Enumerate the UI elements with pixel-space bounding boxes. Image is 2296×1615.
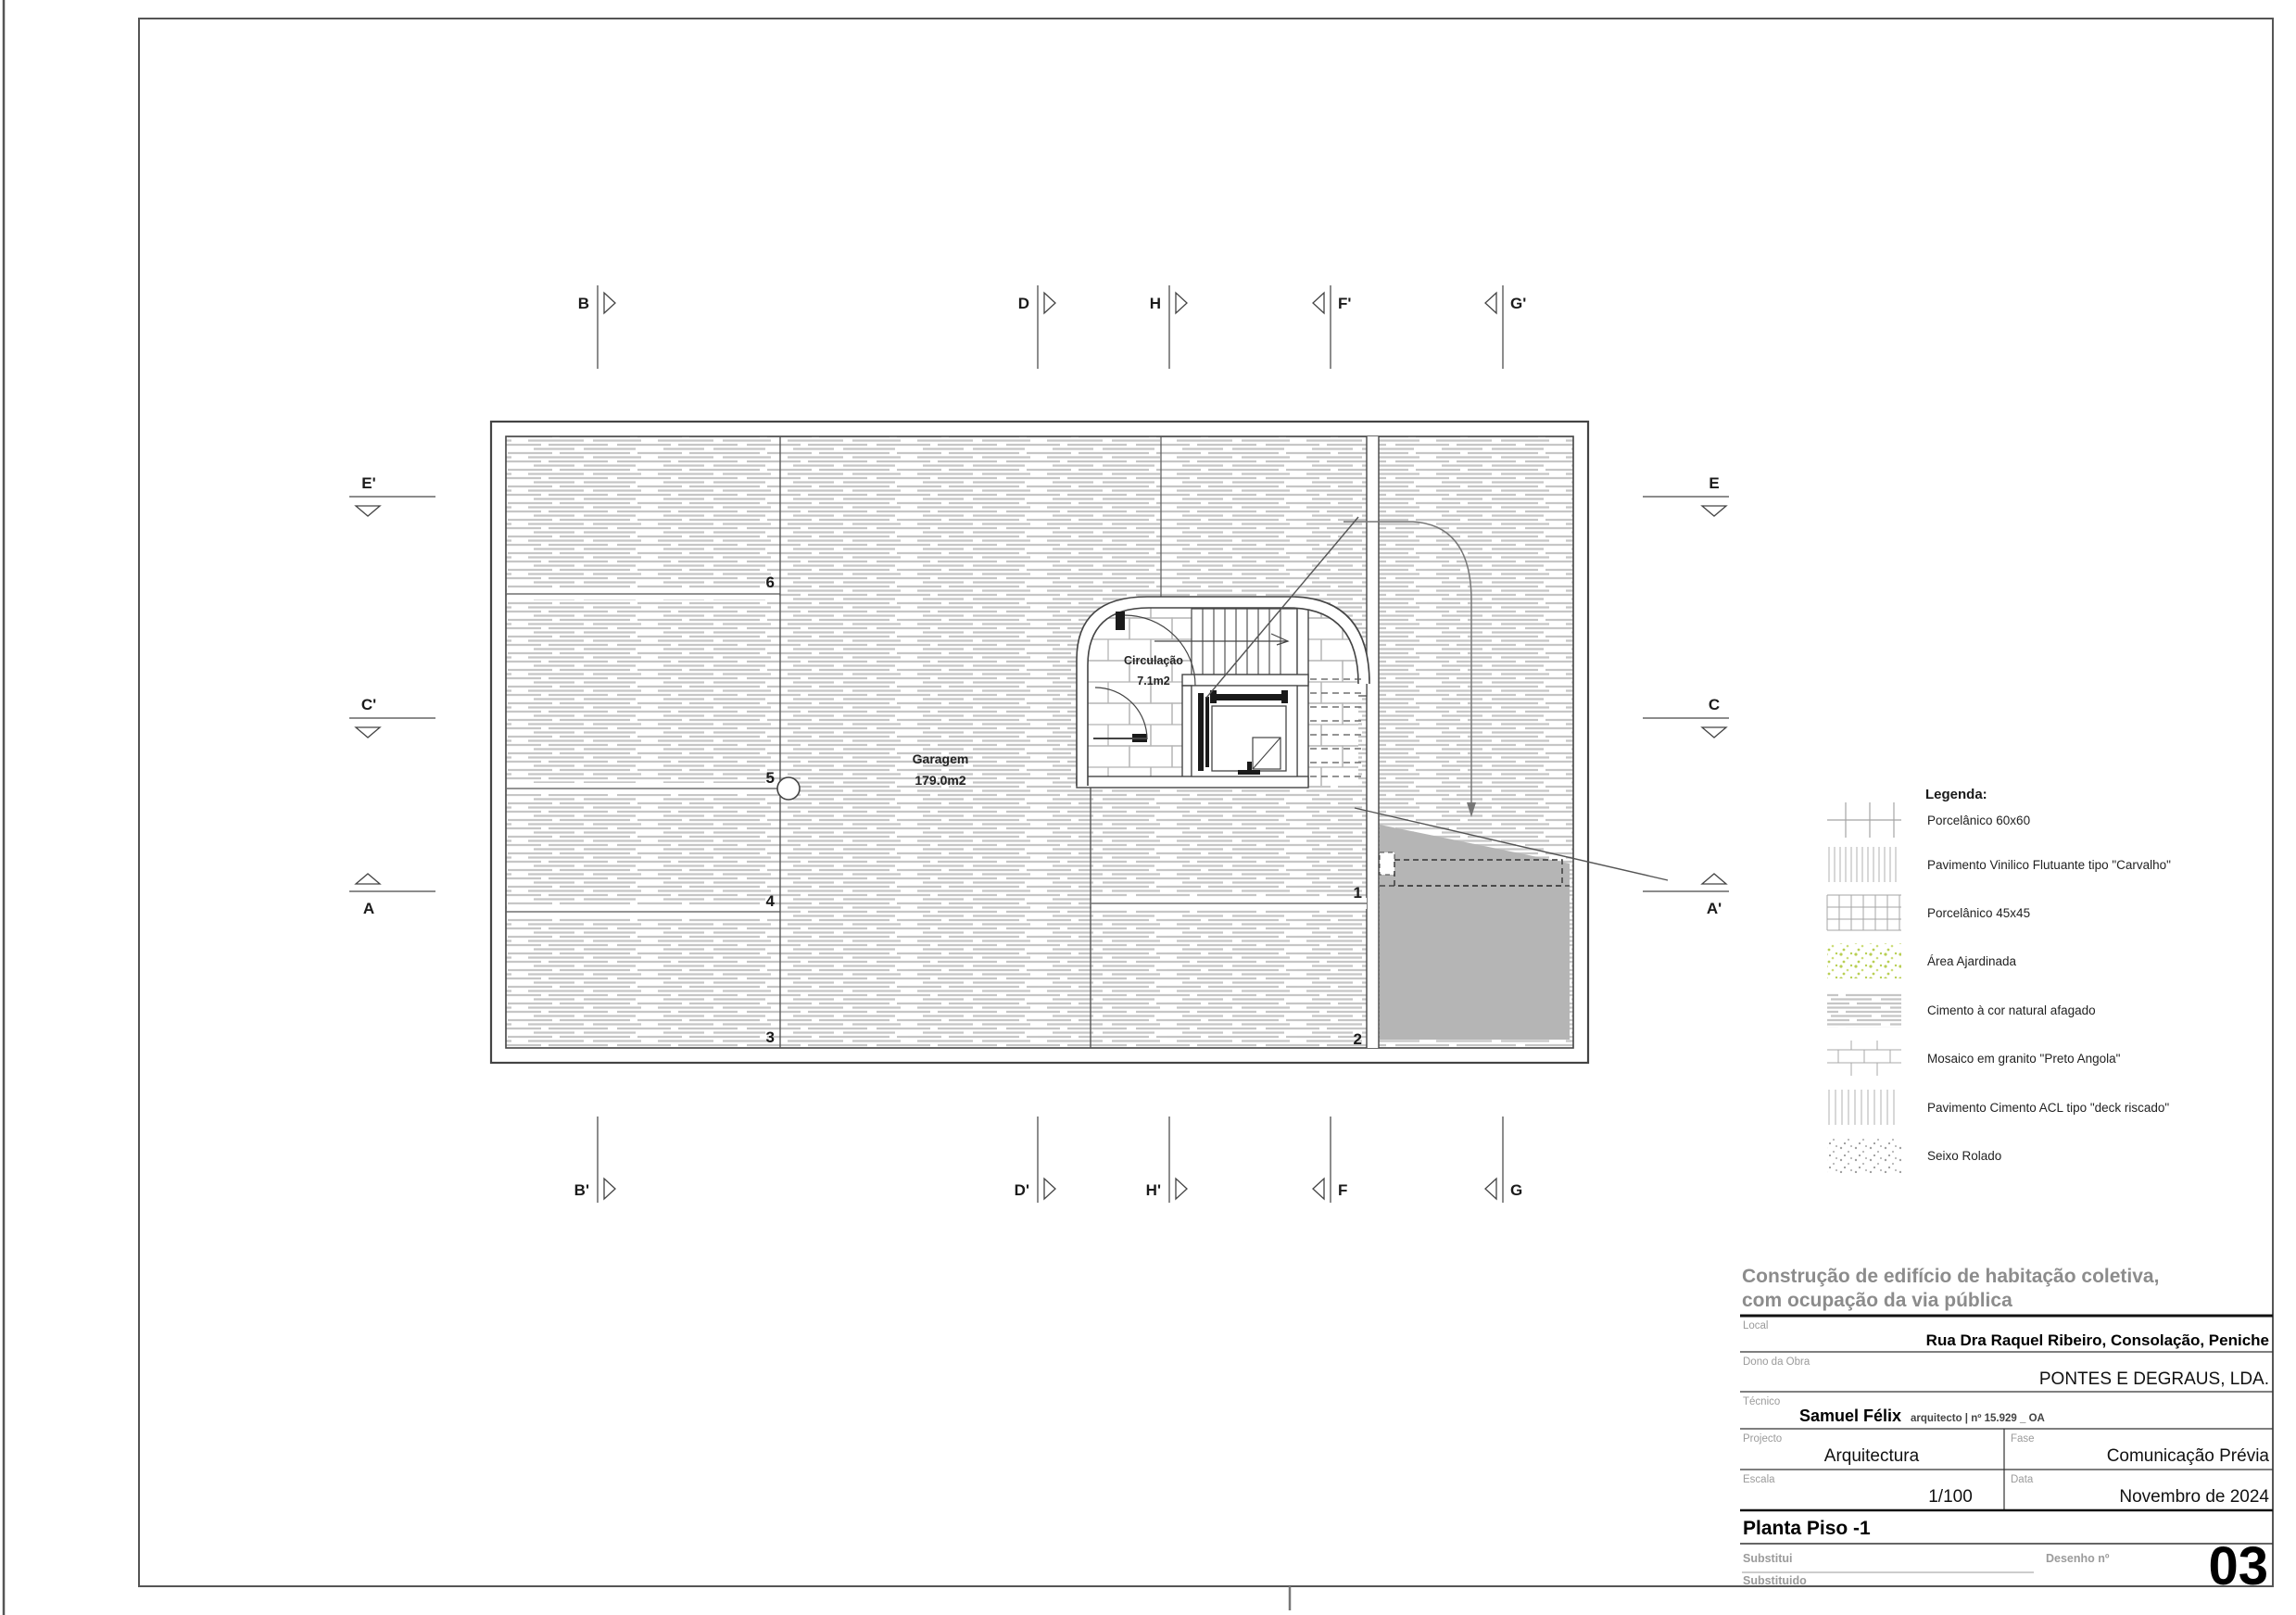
legend-item-label: Pavimento Vinilico Flutuante tipo "Carva… <box>1927 858 2171 872</box>
stall-number-6: 6 <box>766 574 775 591</box>
structural-column <box>777 777 800 800</box>
section-label: E' <box>361 474 375 492</box>
data-label: Data <box>2011 1474 2034 1485</box>
section-arrow-icon <box>356 874 380 884</box>
section-label: B' <box>574 1181 589 1199</box>
floor-plan: 6 5 4 3 1 2 Garagem 179.0m2 Circulação 7… <box>491 422 1668 1063</box>
garagem-area: 179.0m2 <box>915 773 965 788</box>
section-marker-Cp: C' <box>349 696 435 738</box>
dono-da-obra-label: Dono da Obra <box>1743 1356 1810 1368</box>
section-label: D <box>1018 295 1029 312</box>
section-marker-Ep: E' <box>349 474 435 516</box>
circulacao-area: 7.1m2 <box>1137 675 1169 688</box>
stall-separators-right <box>1091 898 1367 909</box>
escala-value: 1/100 <box>1928 1487 1973 1507</box>
section-label: H <box>1150 295 1161 312</box>
section-marker-Fp: F' <box>1313 285 1351 369</box>
section-label: B <box>578 295 589 312</box>
projecto-value: Arquitectura <box>1824 1446 1920 1466</box>
desenho-number: 03 <box>2208 1536 2268 1596</box>
legend-title: Legenda: <box>1925 787 1987 802</box>
data-value: Novembro de 2024 <box>2119 1487 2269 1507</box>
elevator <box>1192 686 1297 776</box>
section-marker-G: G <box>1485 1117 1522 1203</box>
section-label: G <box>1510 1181 1522 1199</box>
section-arrow-icon <box>604 1179 615 1199</box>
legend-swatch-deck-icon <box>1829 1090 1894 1125</box>
section-label: A <box>363 900 374 917</box>
fase-value: Comunicação Prévia <box>2107 1446 2270 1466</box>
section-arrow-icon <box>1044 1179 1055 1199</box>
stall-number-4: 4 <box>766 892 776 910</box>
section-marker-Bp: B' <box>574 1117 615 1203</box>
stall-number-2: 2 <box>1354 1030 1362 1048</box>
stair-core <box>1077 597 1369 788</box>
section-arrow-icon <box>1702 874 1726 884</box>
section-label: D' <box>1015 1181 1029 1199</box>
substitui-label: Substitui <box>1743 1552 1792 1565</box>
stall-number-5: 5 <box>766 769 775 787</box>
section-marker-Dp: D' <box>1015 1117 1055 1203</box>
garagem-label: Garagem <box>913 751 969 766</box>
section-marker-D: D <box>1018 285 1055 369</box>
tecnico-name: Samuel Félix <box>1799 1407 1901 1425</box>
section-arrow-icon <box>604 293 615 313</box>
section-label: C' <box>361 696 376 713</box>
legend-item-label: Porcelânico 60x60 <box>1927 814 2030 827</box>
local-value: Rua Dra Raquel Ribeiro, Consolação, Peni… <box>1926 1331 2269 1349</box>
project-title-line2: com ocupação da via pública <box>1742 1290 2012 1311</box>
plan-canvas: 6 5 4 3 1 2 Garagem 179.0m2 Circulação 7… <box>0 0 2296 1615</box>
section-marker-Ap: A' <box>1643 874 1729 917</box>
stall-number-3: 3 <box>766 1028 775 1046</box>
section-marker-H: H <box>1150 285 1187 369</box>
section-arrow-icon <box>1485 1179 1496 1199</box>
section-arrow-icon <box>356 506 380 516</box>
title-block: Construção de edifício de habitação cole… <box>1740 1266 2273 1596</box>
legend-swatch-porcelanico-60-icon <box>1827 802 1901 838</box>
door-jamb-top <box>1116 612 1125 630</box>
local-label: Local <box>1743 1320 1769 1331</box>
ramp-notch <box>1380 852 1394 875</box>
legend-swatch-cimento-icon <box>1827 992 1901 1028</box>
legend-swatch-ajardinada-icon <box>1827 943 1901 978</box>
section-marker-F: F <box>1313 1117 1347 1203</box>
legend-item-label: Seixo Rolado <box>1927 1149 2001 1163</box>
section-arrow-icon <box>1176 1179 1187 1199</box>
fase-label: Fase <box>2011 1433 2035 1445</box>
section-label: C <box>1709 696 1720 713</box>
section-label: E <box>1709 474 1719 492</box>
legend-item-label: Mosaico em granito "Preto Angola" <box>1927 1052 2121 1066</box>
section-arrow-icon <box>1313 1179 1324 1199</box>
drawing-title: Planta Piso -1 <box>1743 1518 1871 1539</box>
section-arrow-icon <box>1313 293 1324 313</box>
legend-swatch-porcelanico-45-icon <box>1827 895 1901 930</box>
escala-label: Escala <box>1743 1474 1775 1485</box>
section-arrow-icon <box>356 727 380 738</box>
dono-da-obra-value: PONTES E DEGRAUS, LDA. <box>2039 1369 2269 1389</box>
section-arrow-icon <box>1702 506 1726 516</box>
legend-swatch-seixo-icon <box>1827 1138 1901 1173</box>
desenho-label: Desenho nº <box>2046 1552 2110 1565</box>
legend-item-label: Pavimento Cimento ACL tipo "deck riscado… <box>1927 1101 2169 1115</box>
section-marker-B: B <box>578 285 615 369</box>
substituido-label: Substituido <box>1743 1574 1807 1587</box>
stall-number-1: 1 <box>1354 884 1362 902</box>
section-arrow-icon <box>1176 293 1187 313</box>
tecnico-label: Técnico <box>1743 1396 1780 1407</box>
section-marker-Gp: G' <box>1485 285 1526 369</box>
legend-swatch-granito-icon <box>1827 1041 1901 1076</box>
section-label: G' <box>1510 295 1526 312</box>
circulacao-label: Circulação <box>1124 654 1183 667</box>
section-arrow-icon <box>1485 293 1496 313</box>
section-arrow-icon <box>1044 293 1055 313</box>
section-label: H' <box>1146 1181 1161 1199</box>
section-marker-A: A <box>349 874 435 917</box>
section-marker-Hp: H' <box>1146 1117 1187 1203</box>
section-marker-E: E <box>1643 474 1729 516</box>
tecnico-credentials: arquitecto | nº 15.929 _ OA <box>1911 1413 2045 1424</box>
legend-item-label: Cimento à cor natural afagado <box>1927 1003 2096 1017</box>
section-marker-C: C <box>1643 696 1729 738</box>
projecto-label: Projecto <box>1743 1433 1782 1445</box>
elevator-door-track <box>1214 694 1284 700</box>
section-label: F' <box>1338 295 1351 312</box>
project-title-line1: Construção de edifício de habitação cole… <box>1742 1266 2159 1287</box>
section-arrow-icon <box>1702 727 1726 738</box>
legend-item-label: Área Ajardinada <box>1927 954 2017 968</box>
legend-item-label: Porcelânico 45x45 <box>1927 906 2030 920</box>
drawing-sheet: 6 5 4 3 1 2 Garagem 179.0m2 Circulação 7… <box>0 0 2296 1615</box>
legend: Legenda: Porcelânico 60x60 Pavimento Vin… <box>1827 787 2171 1173</box>
section-label: F <box>1338 1181 1347 1199</box>
legend-swatch-vinilico-icon <box>1829 847 1896 882</box>
section-label: A' <box>1707 900 1722 917</box>
